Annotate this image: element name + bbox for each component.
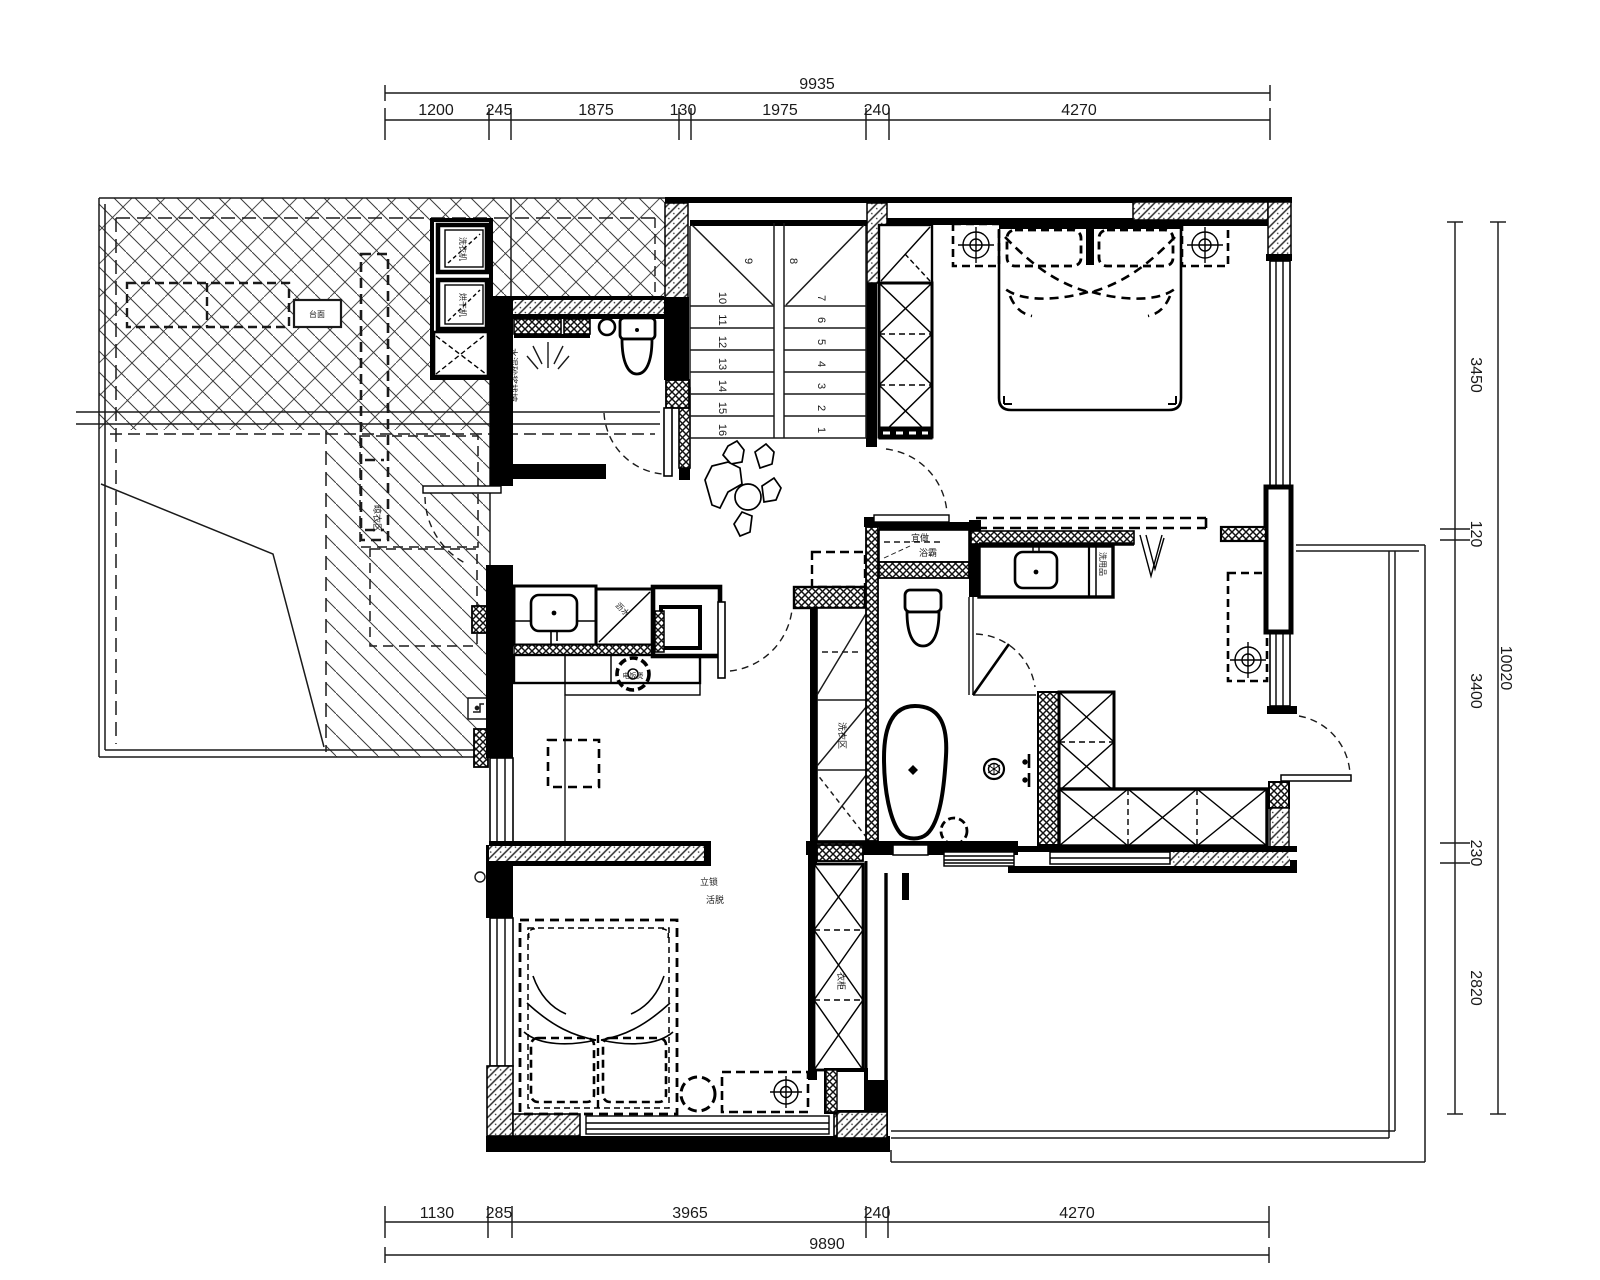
svg-text:3400: 3400 [1467,673,1484,709]
svg-text:130: 130 [670,102,697,119]
svg-text:2: 2 [815,405,827,411]
svg-text:120: 120 [1467,521,1484,548]
svg-text:洗衣机: 洗衣机 [458,237,468,261]
svg-text:台面: 台面 [309,309,325,319]
svg-text:240: 240 [864,102,891,119]
svg-text:10020: 10020 [1497,646,1514,691]
svg-text:晾衣区: 晾衣区 [372,505,383,532]
svg-text:3: 3 [815,383,827,389]
svg-text:洗衣区: 洗衣区 [837,722,848,749]
svg-text:230: 230 [1467,840,1484,867]
svg-text:285: 285 [486,1205,513,1222]
svg-text:1975: 1975 [762,102,798,119]
svg-text:15: 15 [716,402,728,414]
svg-text:245: 245 [486,102,513,119]
svg-text:立锁: 立锁 [700,876,718,887]
svg-text:14: 14 [716,380,728,392]
svg-text:1200: 1200 [418,102,454,119]
svg-text:6: 6 [815,317,827,323]
svg-text:洗用品: 洗用品 [1098,552,1108,576]
svg-text:9890: 9890 [809,1236,845,1253]
svg-text:1: 1 [815,427,827,433]
svg-text:2820: 2820 [1467,970,1484,1006]
svg-text:16: 16 [716,424,728,436]
svg-text:240: 240 [864,1205,891,1222]
svg-text:4: 4 [815,361,827,367]
svg-text:电饭煲: 电饭煲 [623,671,644,680]
svg-text:11: 11 [716,314,728,325]
svg-text:衣柜: 衣柜 [836,972,847,990]
svg-text:活脱: 活脱 [706,894,724,905]
svg-text:13: 13 [716,358,728,370]
svg-text:宜做: 宜做 [911,532,929,543]
svg-text:4270: 4270 [1061,102,1097,119]
svg-text:9935: 9935 [799,76,835,93]
svg-text:浴霸: 浴霸 [919,548,937,558]
svg-text:1875: 1875 [578,102,614,119]
svg-text:1130: 1130 [420,1205,455,1222]
svg-text:7: 7 [815,295,827,301]
svg-text:5: 5 [815,339,827,345]
svg-text:12: 12 [716,336,728,348]
svg-text:9: 9 [742,258,754,264]
svg-text:3450: 3450 [1467,357,1484,393]
svg-text:4270: 4270 [1059,1205,1095,1222]
svg-text:10: 10 [716,292,728,304]
svg-text:3965: 3965 [672,1205,708,1222]
svg-text:8: 8 [787,258,799,264]
svg-text:烘干机: 烘干机 [458,293,468,317]
